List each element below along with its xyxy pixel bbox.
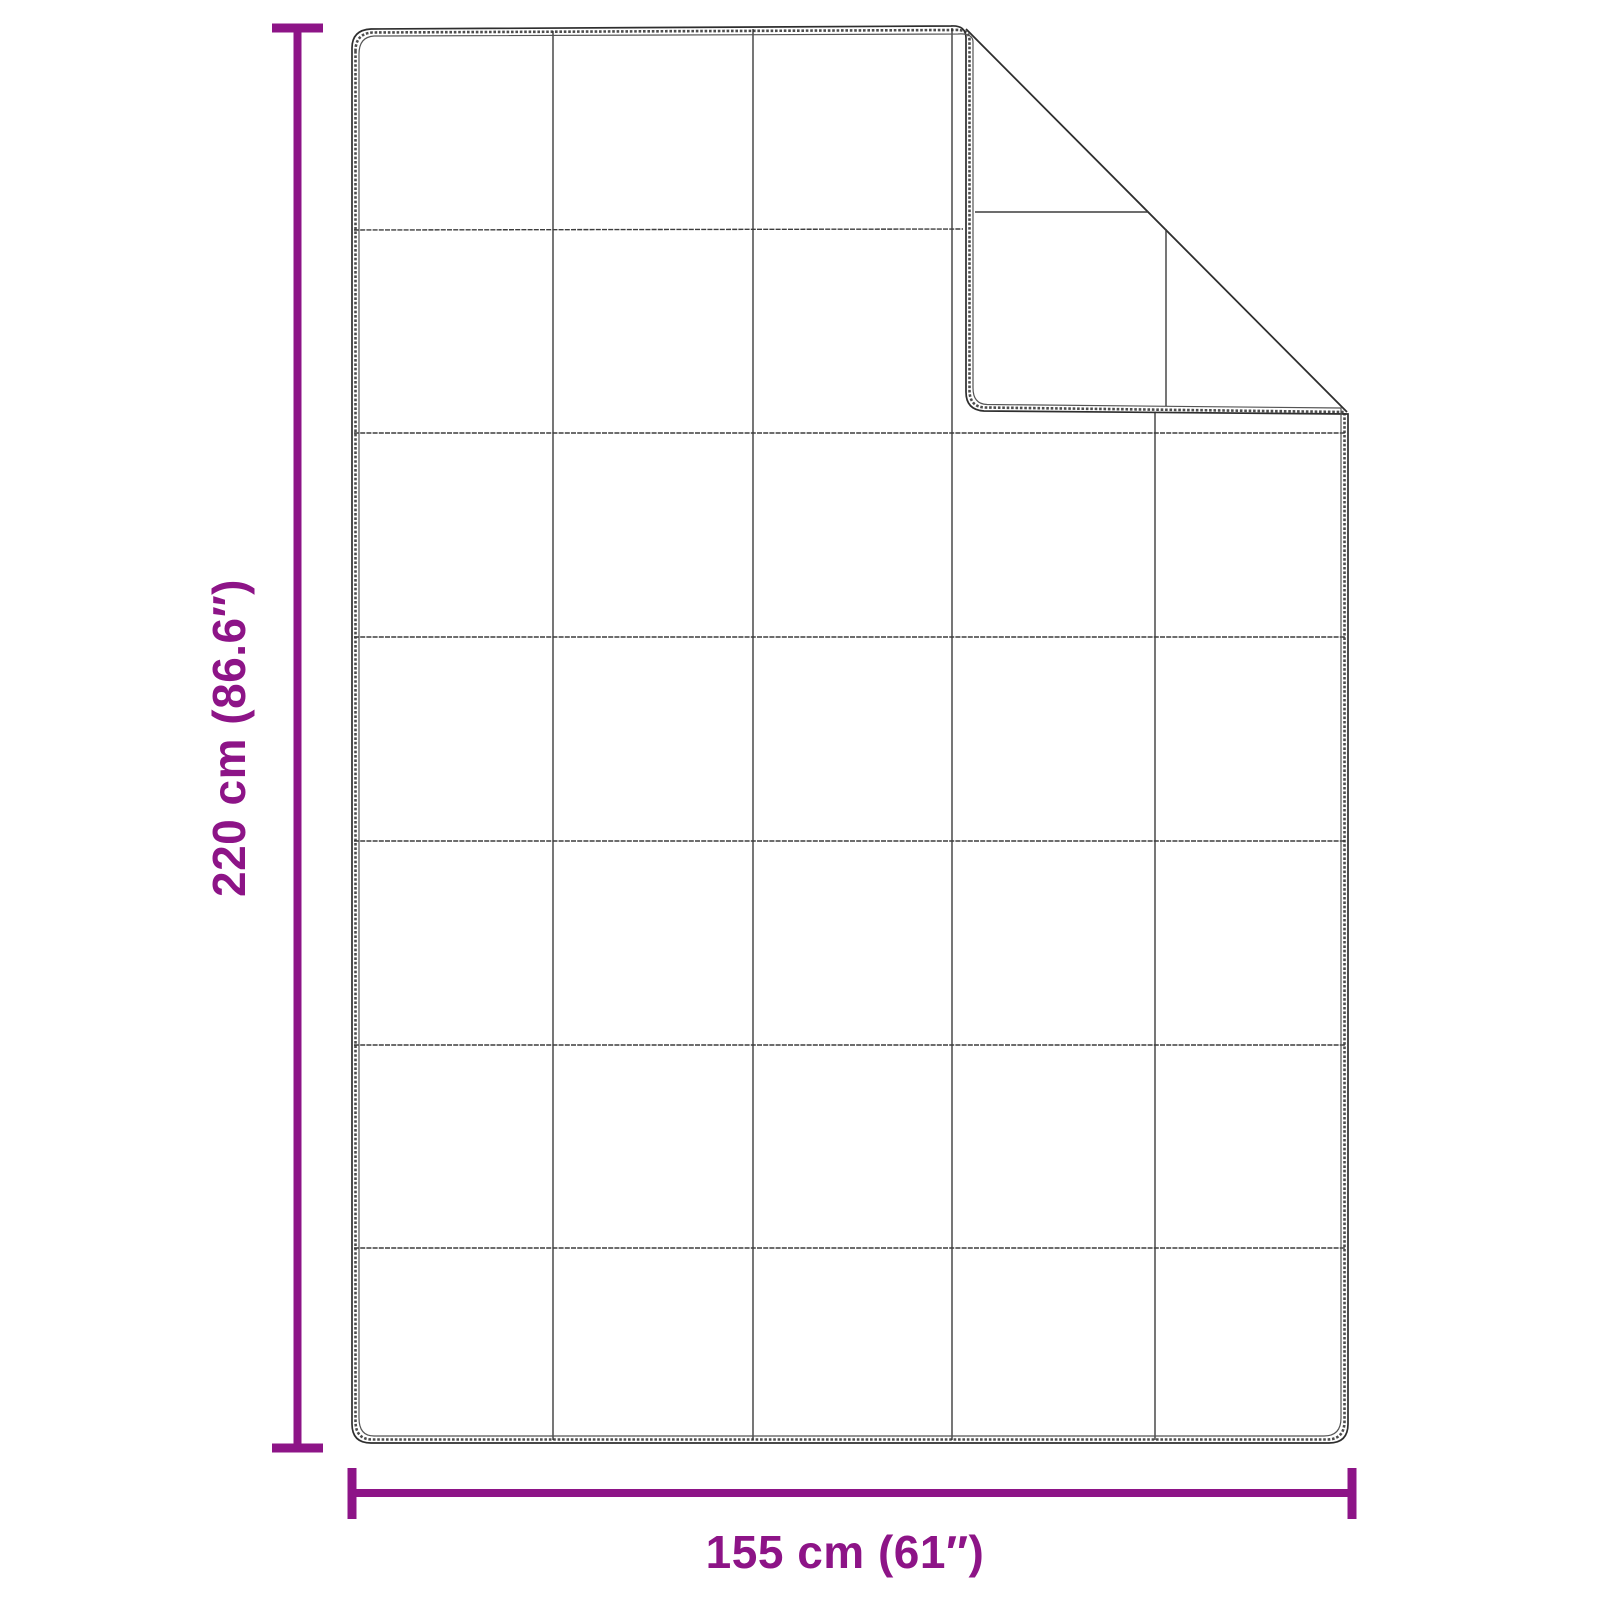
quilt-grid — [354, 28, 1346, 1440]
blanket-edge-stitching — [356, 30, 1345, 1440]
height-label: 220 cm (86.6″) — [203, 579, 255, 897]
blanket-diagram-canvas: 220 cm (86.6″) 155 cm (61″) — [0, 0, 1600, 1600]
width-dimension-line — [352, 1468, 1352, 1519]
blanket-edge-outer — [352, 26, 1348, 1443]
dimension-diagram: 220 cm (86.6″) 155 cm (61″) — [0, 0, 1600, 1600]
width-label: 155 cm (61″) — [706, 1526, 985, 1578]
height-dimension-line — [272, 28, 323, 1448]
quilt-seam-horizontal — [354, 229, 963, 230]
folded-corner — [966, 29, 1347, 412]
fold-crease-line — [966, 29, 1347, 412]
blanket-edge-inner — [359, 34, 1341, 1436]
blanket-outline — [352, 26, 1348, 1443]
